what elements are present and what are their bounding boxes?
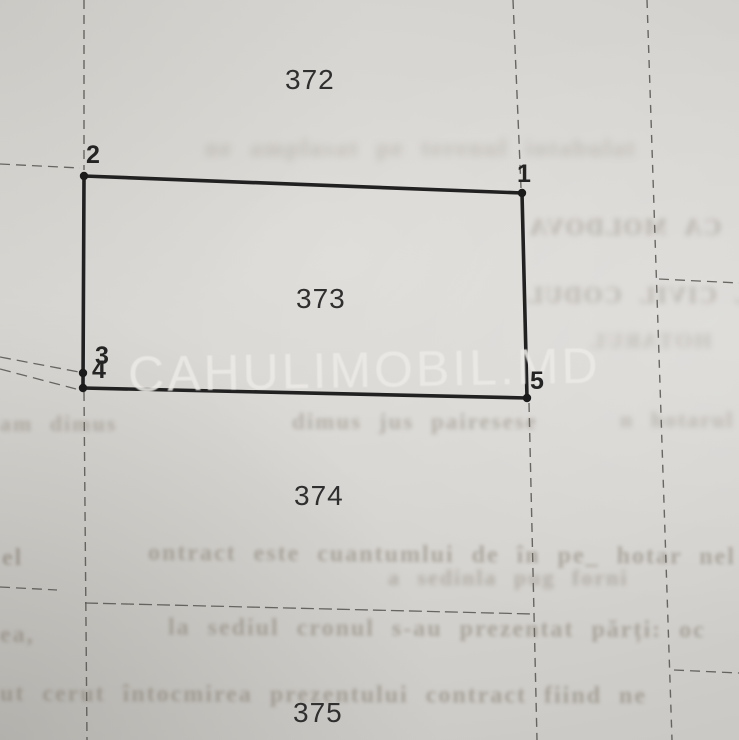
- bleed-through-text: n hotarul: [620, 407, 734, 433]
- survey-point-dot: [518, 189, 526, 197]
- bleed-through-text: ne amplasat pe terenul intabulat: [205, 136, 637, 163]
- boundary-dashed-line: [0, 587, 57, 590]
- survey-point-dot: [79, 369, 87, 377]
- bleed-through-text: ea,: [0, 622, 35, 649]
- cadastral-plan-scan: CAHULIMOBIL.MD 372373374375 12345 ne amp…: [0, 0, 739, 740]
- survey-point-label-2: 2: [86, 141, 100, 170]
- bleed-through-text: am dimus: [0, 411, 117, 437]
- boundary-dashed-line: [0, 369, 76, 389]
- bleed-through-text: ut cerut întocmirea prezentului contract…: [0, 681, 647, 710]
- parcel-label-374: 374: [294, 480, 344, 512]
- boundary-dashed-line: [85, 603, 533, 614]
- survey-point-dot: [80, 172, 88, 180]
- parcel-label-373: 373: [296, 283, 346, 315]
- bleed-through-text: el: [2, 545, 23, 572]
- bleed-through-text: dimus jus pairesese: [292, 409, 538, 435]
- parcel-label-372: 372: [285, 64, 335, 96]
- bleed-through-text: CA MOLDOVA: [528, 215, 721, 242]
- bleed-through-text: la sediul cronul s-au prezentat părți: o…: [168, 615, 706, 645]
- bleed-through-text: a sedinla pug forni: [388, 565, 628, 591]
- survey-point-label-1: 1: [517, 160, 531, 189]
- survey-point-dot: [79, 384, 87, 392]
- survey-point-label-5: 5: [530, 367, 544, 396]
- boundary-dashed-line: [674, 670, 739, 673]
- bleed-through-text: L CIVIL CODUL: [525, 283, 739, 310]
- bleed-through-text: HOTARUL: [588, 328, 712, 354]
- boundary-dashed-line: [0, 164, 80, 168]
- survey-point-label-4: 4: [92, 356, 106, 385]
- boundary-dashed-line: [0, 357, 79, 372]
